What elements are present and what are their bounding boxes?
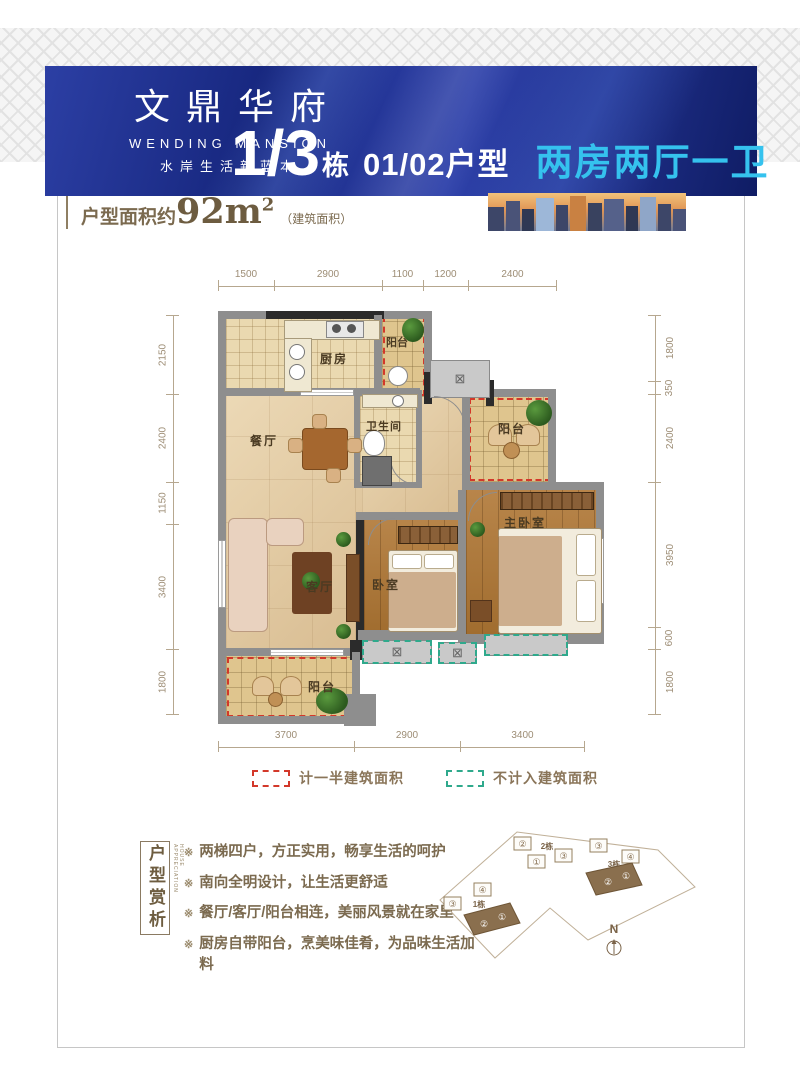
bullet-text: 餐厅/客厅/阳台相连，美丽风景就在家里 <box>199 901 454 922</box>
skyline-photo <box>488 193 686 231</box>
washbasin <box>392 395 404 407</box>
site-building-2: ② ① ③ 2栋 <box>514 837 572 868</box>
dim-label: 2400 <box>665 427 676 449</box>
balcony-table <box>268 692 283 707</box>
dim-segment: 1150 <box>152 482 174 524</box>
dim-segment: 1200 <box>423 265 468 287</box>
dim-chain-top: 1500 2900 1100 1200 2400 <box>218 265 557 287</box>
sofa-chaise <box>266 518 304 546</box>
unit-type: 01/02户型 <box>363 139 510 184</box>
dim-label: 3400 <box>157 575 168 597</box>
dim-segment: 1800 <box>634 649 656 715</box>
ac-platform: ⊠ <box>438 642 477 664</box>
dim-label: 1150 <box>157 492 168 514</box>
wall <box>548 389 556 487</box>
bullet-marker: ※ <box>184 907 193 920</box>
dim-label: 1800 <box>665 337 676 359</box>
building-label: 2栋 <box>541 841 553 851</box>
block-unit: 栋 <box>322 144 349 183</box>
dim-chain-bottom: 3700 2900 3400 <box>218 726 585 748</box>
window <box>218 540 226 608</box>
chair <box>288 438 303 453</box>
dim-segment: 3400 <box>152 524 174 649</box>
dim-label: 2400 <box>157 427 168 449</box>
dim-segment: 3700 <box>218 726 354 748</box>
ac-symbol: ⊠ <box>455 371 466 387</box>
nightstand <box>470 600 492 622</box>
balcony-chair <box>280 676 302 696</box>
dim-segment: 1500 <box>218 265 274 287</box>
plant <box>336 532 351 547</box>
area-prefix: 户型面积约 <box>81 202 176 229</box>
dim-label: 2900 <box>354 730 460 741</box>
analysis-title-english: HOUSE APPRECIATION <box>172 844 184 893</box>
unit-number: ① <box>532 857 540 867</box>
wall-corner-block <box>344 694 376 726</box>
bullet-marker: ※ <box>184 877 193 890</box>
wall <box>462 482 604 490</box>
layout-type: 两房两厅一卫 <box>536 132 770 186</box>
highlighted-building <box>586 863 642 895</box>
dim-label: 1200 <box>423 269 468 280</box>
unit-number: ③ <box>559 851 567 861</box>
dim-segment: 3400 <box>460 726 585 748</box>
unit-number-highlight: ② <box>604 877 612 887</box>
area-value: 92m2 <box>176 196 274 228</box>
room-label-living: 客厅 <box>306 578 334 595</box>
burner <box>332 324 341 333</box>
legend-swatch-green <box>446 770 484 787</box>
dim-label: 2150 <box>157 343 168 365</box>
plant <box>336 624 351 639</box>
bullet-text: 两梯四户，方正实用，畅享生活的呵护 <box>199 840 446 861</box>
wall <box>356 512 466 520</box>
burner <box>347 324 356 333</box>
chair <box>312 414 327 429</box>
compass-n-label: N <box>610 922 619 936</box>
unit-number: ④ <box>626 852 634 862</box>
ac-symbol: ⊠ <box>452 645 463 661</box>
dim-label: 1800 <box>665 671 676 693</box>
dim-label: 1100 <box>382 269 423 280</box>
dim-label: 1800 <box>157 671 168 693</box>
washing-machine <box>388 366 408 386</box>
ac-platform <box>484 634 568 656</box>
dim-segment: 2400 <box>634 394 656 482</box>
area-statement: 户型面积约 92m2 （建筑面积） <box>66 196 352 229</box>
legend-item-half-area: 计一半建筑面积 <box>252 768 404 788</box>
room-label-bedroom: 卧室 <box>372 576 400 593</box>
wardrobe <box>500 492 594 510</box>
legend-label: 计一半建筑面积 <box>299 768 404 788</box>
wardrobe <box>398 526 458 544</box>
dim-label: 2900 <box>274 269 382 280</box>
dim-segment: 350 <box>634 381 656 394</box>
legend-swatch-red <box>252 770 290 787</box>
area-number: 92m <box>176 191 262 232</box>
bathroom-counter <box>362 394 418 408</box>
unit-number-highlight: ① <box>498 912 506 922</box>
pillow <box>576 534 596 576</box>
legend-item-excluded: 不计入建筑面积 <box>446 768 598 788</box>
blanket <box>498 536 562 626</box>
sliding-door <box>270 649 344 656</box>
block-number: 1/3 <box>231 121 320 185</box>
skyline-buildings <box>488 193 686 231</box>
dim-chain-right: 1800 350 2400 3950 600 1800 <box>634 315 656 715</box>
header-banner: 文鼎华府 WENDING MANSION 水岸生活新蓝本 1/3 栋 01/02… <box>45 66 757 196</box>
unit-number: ② <box>518 839 526 849</box>
dining-table <box>302 428 348 470</box>
site-plan: ② ① ③ 2栋 ③ ④ 3栋 ② ① ④ ③ 1栋 ② ① <box>430 815 710 983</box>
dim-label: 600 <box>665 630 676 647</box>
chair <box>347 438 362 453</box>
room-label-kitchen: 厨房 <box>320 350 348 367</box>
pillow <box>392 554 422 569</box>
wall <box>218 311 226 662</box>
shower <box>362 456 392 486</box>
dim-segment: 2900 <box>354 726 460 748</box>
dim-segment: 1100 <box>382 265 423 287</box>
dim-segment: 2400 <box>468 265 557 287</box>
room-label-master-bedroom: 主卧室 <box>504 514 546 531</box>
unit-number-highlight: ② <box>480 919 488 929</box>
dim-label: 1500 <box>218 269 274 280</box>
room-label-dining: 餐厅 <box>250 432 278 449</box>
area-note: （建筑面积） <box>280 210 352 227</box>
room-label-balcony-right: 阳台 <box>498 420 526 437</box>
bullet-marker: ※ <box>184 938 193 951</box>
room-label-balcony-bottom: 阳台 <box>308 678 336 695</box>
pillow <box>424 554 454 569</box>
unit-headline: 1/3 栋 01/02户型 两房两厅一卫 <box>231 121 770 186</box>
dim-label: 3950 <box>665 543 676 565</box>
bullet-text: 南向全明设计，让生活更舒适 <box>199 871 388 892</box>
ac-symbol: ⊠ <box>392 644 403 660</box>
wall <box>218 654 226 724</box>
site-building-1: ④ ③ 1栋 ② ① <box>444 883 520 935</box>
dim-label: 2400 <box>468 269 557 280</box>
dim-label: 350 <box>665 379 676 396</box>
unit-number: ③ <box>594 841 602 851</box>
wall <box>462 390 470 488</box>
dim-segment: 2150 <box>152 315 174 394</box>
legend-label: 不计入建筑面积 <box>493 768 598 788</box>
plant <box>526 400 552 426</box>
sink-basin <box>289 364 305 380</box>
analysis-title: 户型赏析 <box>140 841 170 935</box>
dim-label: 3700 <box>218 730 354 741</box>
sink-basin <box>289 344 305 360</box>
dim-segment: 2400 <box>152 394 174 482</box>
balcony-table <box>503 442 520 459</box>
dim-label: 3400 <box>460 730 585 741</box>
tv-cabinet <box>346 554 360 622</box>
unit-number-highlight: ① <box>622 871 630 881</box>
wall <box>266 311 384 319</box>
pillow <box>576 580 596 622</box>
dim-segment: 3950 <box>634 482 656 627</box>
ac-platform: ⊠ <box>430 360 490 398</box>
site-building-3: ③ ④ 3栋 ② ① <box>586 839 642 895</box>
plant <box>470 522 485 537</box>
bullet-marker: ※ <box>184 846 193 859</box>
north-compass: N <box>607 922 621 955</box>
dim-segment: 1800 <box>152 649 174 715</box>
chair <box>326 468 341 483</box>
dim-segment: 600 <box>634 627 656 649</box>
dim-segment: 1800 <box>634 315 656 381</box>
dim-segment: 2900 <box>274 265 382 287</box>
area-superscript: 2 <box>262 194 275 215</box>
room-label-balcony-top: 阳台 <box>386 334 408 350</box>
ac-platform: ⊠ <box>362 640 432 664</box>
building-label: 1栋 <box>473 899 485 909</box>
plan-legend: 计一半建筑面积 不计入建筑面积 <box>252 768 598 788</box>
unit-number: ③ <box>448 899 456 909</box>
sofa <box>228 518 268 632</box>
dim-chain-left: 2150 2400 1150 3400 1800 <box>152 315 174 715</box>
brochure-page: 文鼎华府 WENDING MANSION 水岸生活新蓝本 1/3 栋 01/02… <box>0 0 800 1085</box>
room-label-bathroom: 卫生间 <box>366 418 402 434</box>
unit-number: ④ <box>478 885 486 895</box>
